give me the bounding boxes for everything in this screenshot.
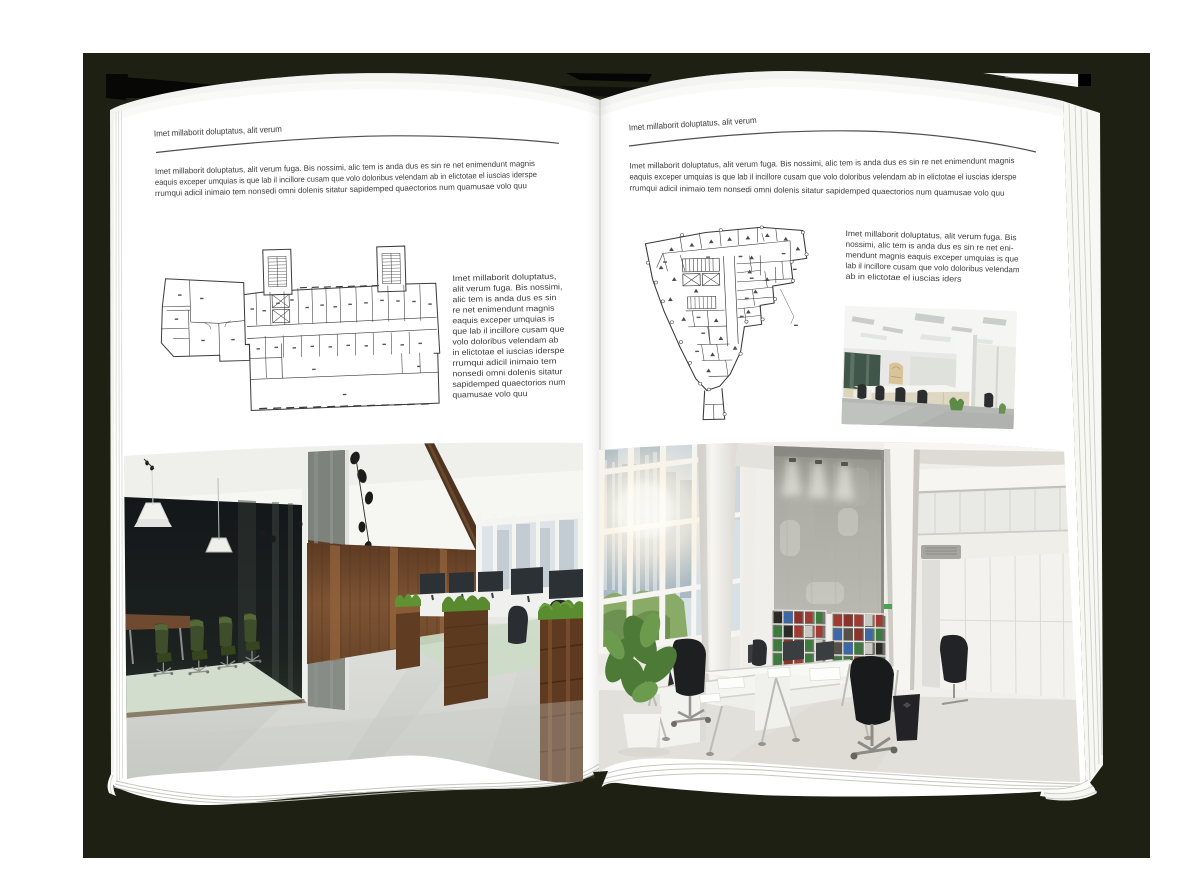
- svg-text:quamusae volo quu: quamusae volo quu: [452, 389, 527, 400]
- svg-text:eaquis exceper umquias is que: eaquis exceper umquias is que lab il inc…: [630, 173, 1018, 182]
